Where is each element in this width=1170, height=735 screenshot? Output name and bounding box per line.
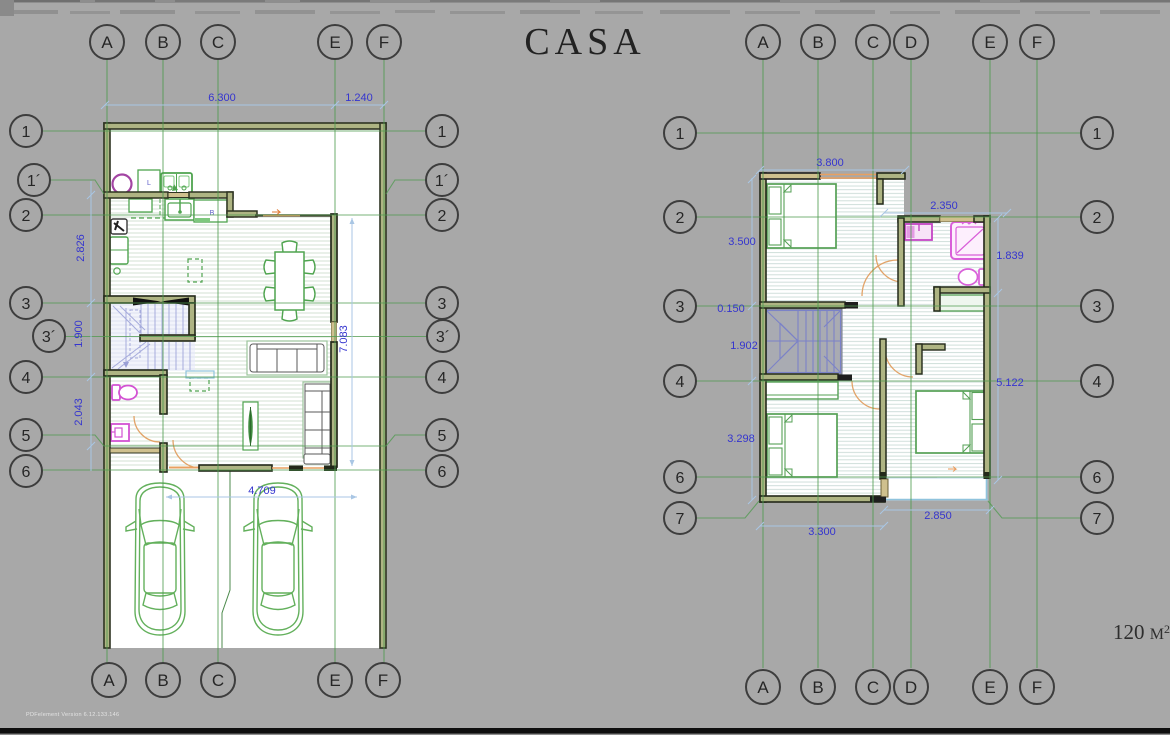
svg-text:7: 7 xyxy=(1093,511,1102,528)
svg-text:D: D xyxy=(905,678,917,697)
svg-text:3: 3 xyxy=(22,296,31,313)
svg-text:2.850: 2.850 xyxy=(924,510,952,522)
svg-text:2: 2 xyxy=(438,208,447,225)
svg-text:2: 2 xyxy=(22,208,31,225)
svg-text:2.826: 2.826 xyxy=(75,234,87,262)
svg-text:3.500: 3.500 xyxy=(728,236,756,248)
svg-text:2: 2 xyxy=(1093,210,1102,227)
svg-text:C: C xyxy=(867,33,879,52)
svg-text:3.298: 3.298 xyxy=(727,433,755,445)
svg-text:2.043: 2.043 xyxy=(73,398,85,426)
svg-text:A: A xyxy=(757,33,769,52)
svg-text:A: A xyxy=(101,33,113,52)
svg-text:C: C xyxy=(212,671,224,690)
svg-text:6: 6 xyxy=(22,464,31,481)
svg-text:E: E xyxy=(329,671,340,690)
svg-text:F: F xyxy=(378,671,388,690)
svg-text:1: 1 xyxy=(22,124,31,141)
svg-text:5: 5 xyxy=(22,428,31,445)
svg-text:7.083: 7.083 xyxy=(338,325,350,353)
svg-text:4.709: 4.709 xyxy=(248,485,276,497)
svg-text:7: 7 xyxy=(676,511,685,528)
svg-text:5.122: 5.122 xyxy=(996,377,1024,389)
svg-text:1: 1 xyxy=(438,124,447,141)
svg-text:1.240: 1.240 xyxy=(345,92,373,104)
svg-text:B: B xyxy=(157,33,168,52)
svg-text:C: C xyxy=(867,678,879,697)
svg-text:3: 3 xyxy=(1093,299,1102,316)
svg-text:6: 6 xyxy=(438,464,447,481)
svg-text:CASA: CASA xyxy=(524,21,645,63)
svg-text:A: A xyxy=(757,678,769,697)
svg-text:E: E xyxy=(329,33,340,52)
svg-text:E: E xyxy=(984,33,995,52)
svg-text:4: 4 xyxy=(22,370,31,387)
svg-text:3.800: 3.800 xyxy=(816,157,844,169)
svg-text:D: D xyxy=(905,33,917,52)
svg-text:B: B xyxy=(157,671,168,690)
svg-text:3: 3 xyxy=(438,296,447,313)
svg-text:B: B xyxy=(812,33,823,52)
svg-text:1.900: 1.900 xyxy=(73,320,85,348)
svg-text:1´: 1´ xyxy=(27,173,41,190)
svg-text:L: L xyxy=(147,180,151,187)
svg-text:B: B xyxy=(210,210,215,217)
svg-text:3.300: 3.300 xyxy=(808,526,836,538)
svg-text:4: 4 xyxy=(1093,374,1102,391)
svg-text:1: 1 xyxy=(676,126,685,143)
svg-text:3´: 3´ xyxy=(42,329,56,346)
svg-text:2.350: 2.350 xyxy=(930,200,958,212)
svg-text:0.150: 0.150 xyxy=(717,303,745,315)
svg-text:F: F xyxy=(1032,678,1042,697)
svg-text:A: A xyxy=(103,671,115,690)
svg-text:6.300: 6.300 xyxy=(208,92,236,104)
svg-text:B: B xyxy=(812,678,823,697)
svg-text:1´: 1´ xyxy=(435,173,449,190)
svg-text:5: 5 xyxy=(438,428,447,445)
svg-text:C: C xyxy=(212,33,224,52)
svg-text:3´: 3´ xyxy=(436,329,450,346)
svg-text:1.839: 1.839 xyxy=(996,250,1024,262)
svg-text:3: 3 xyxy=(676,299,685,316)
svg-text:PDFelement Version 6.12.133.1: PDFelement Version 6.12.133.146 xyxy=(26,712,119,718)
svg-text:F: F xyxy=(379,33,389,52)
svg-text:4: 4 xyxy=(438,370,447,387)
svg-text:2: 2 xyxy=(676,210,685,227)
svg-text:1.902: 1.902 xyxy=(730,340,758,352)
svg-text:6: 6 xyxy=(676,470,685,487)
svg-text:6: 6 xyxy=(1093,470,1102,487)
svg-text:1: 1 xyxy=(1093,126,1102,143)
svg-text:F: F xyxy=(1032,33,1042,52)
svg-text:E: E xyxy=(984,678,995,697)
svg-text:4: 4 xyxy=(676,374,685,391)
